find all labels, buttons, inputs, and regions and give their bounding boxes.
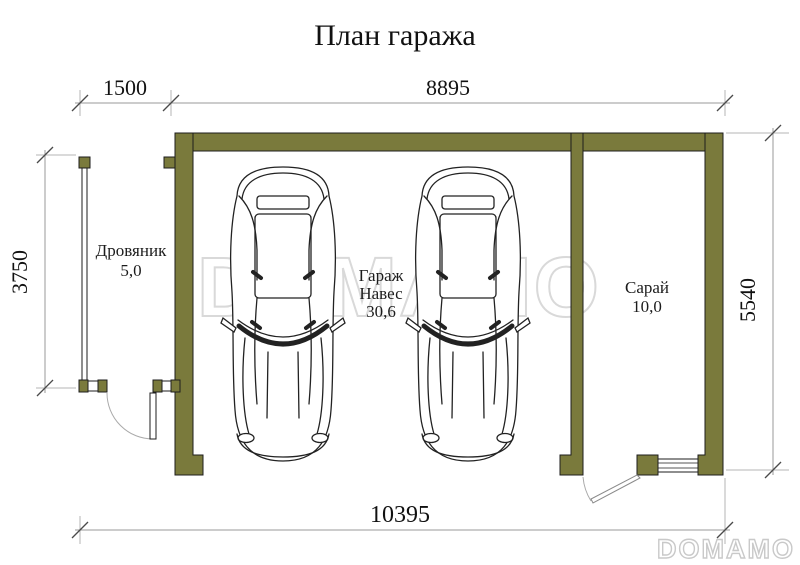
room-shed-name: Сарай [625, 278, 669, 297]
wall-right [698, 133, 723, 475]
car-top-view-right [406, 167, 530, 461]
garage-floor-plan-page: План гаража DOMAMO [0, 0, 800, 565]
dimension-top: 1500 8895 [72, 75, 733, 116]
wall-pier-shed [637, 455, 658, 475]
dimension-left-value: 3750 [7, 250, 32, 294]
woodshed-side-wall [82, 168, 87, 381]
dimension-bottom-value: 10395 [370, 502, 430, 528]
window-shed [658, 459, 698, 472]
wall-top [175, 133, 723, 151]
room-garage-subtype: Навес [359, 284, 403, 303]
woodshed-post [164, 157, 175, 168]
woodshed-post [98, 380, 107, 392]
door-shed [583, 475, 640, 503]
woodshed-post [171, 380, 180, 392]
car-top-view-left [221, 167, 345, 461]
woodshed-structure [79, 157, 180, 439]
floor-plan-drawing: План гаража DOMAMO [0, 0, 800, 565]
room-label-woodshed: Дровяник 5,0 [96, 241, 167, 280]
woodshed-post [79, 157, 90, 168]
room-shed-area: 10,0 [632, 297, 662, 316]
room-label-shed: Сарай 10,0 [625, 278, 669, 316]
woodshed-post [153, 380, 162, 392]
dimension-top-left-value: 1500 [103, 75, 147, 100]
dimension-left: 3750 [7, 147, 76, 396]
door-leaf-shed [591, 475, 640, 503]
watermark-corner: DOMAMO [657, 534, 795, 564]
door-swing-shed [583, 477, 591, 501]
dimension-right: 5540 [726, 125, 789, 478]
room-woodshed-area: 5,0 [120, 261, 141, 280]
plan-title: План гаража [314, 19, 475, 52]
room-garage-area: 30,6 [366, 302, 396, 321]
dimension-bottom: 10395 [72, 478, 733, 544]
dimension-right-value: 5540 [735, 278, 760, 322]
room-woodshed-name: Дровяник [96, 241, 167, 260]
woodshed-post [79, 380, 88, 392]
door-leaf-woodshed [150, 393, 156, 439]
room-garage-name: Гараж [359, 266, 404, 285]
door-swing-woodshed [107, 393, 153, 439]
dimension-top-main-value: 8895 [426, 75, 470, 100]
